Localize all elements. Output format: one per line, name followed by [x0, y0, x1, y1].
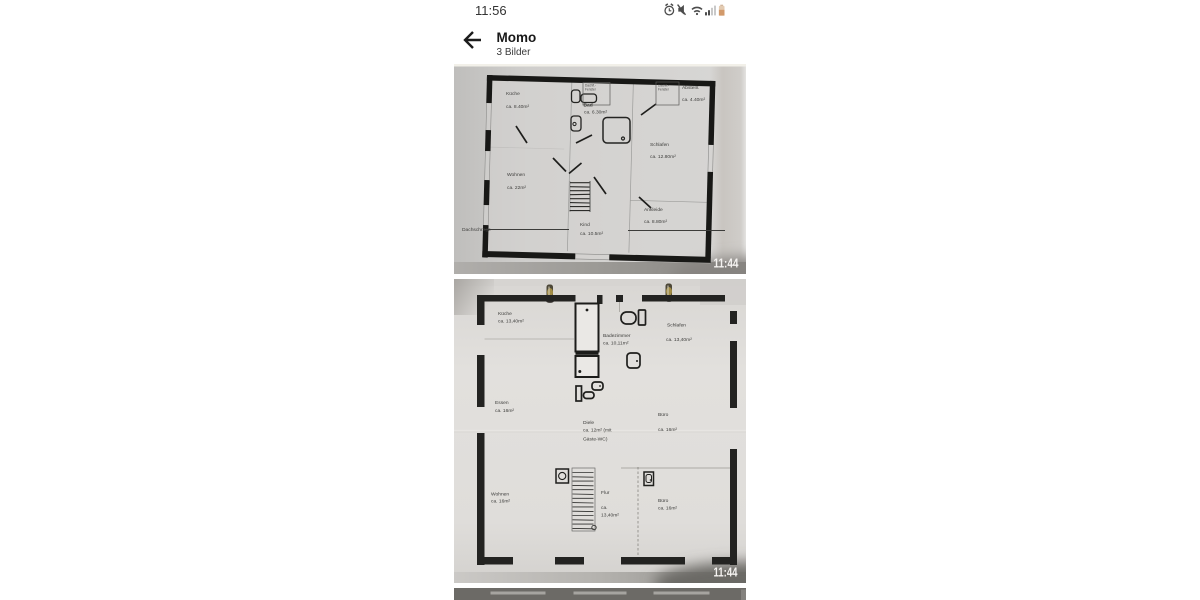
svg-text:Diele: Diele [583, 420, 594, 426]
svg-text:ca. 13,40m²: ca. 13,40m² [666, 337, 692, 343]
svg-text:ca.: ca. [601, 506, 608, 511]
svg-text:Wohnen: Wohnen [507, 172, 525, 178]
svg-text:ca. 22m²: ca. 22m² [507, 185, 526, 191]
svg-text:ca. 8.40m²: ca. 8.40m² [506, 104, 529, 110]
svg-text:11:44: 11:44 [714, 256, 740, 271]
svg-text:Badezimmer: Badezimmer [603, 333, 631, 339]
svg-text:ca. 10.5m²: ca. 10.5m² [580, 231, 603, 237]
svg-text:ca. 16m²: ca. 16m² [658, 506, 677, 512]
svg-text:ca. 10,11m²: ca. 10,11m² [603, 341, 629, 347]
svg-text:ca. 12.80m²: ca. 12.80m² [650, 154, 676, 160]
svg-text:11:44: 11:44 [714, 565, 739, 580]
svg-text:Fenster: Fenster [585, 88, 597, 92]
svg-text:ca. 4.40m²: ca. 4.40m² [682, 97, 705, 103]
svg-text:ca. 16m²: ca. 16m² [491, 499, 510, 505]
svg-text:Abstellr.: Abstellr. [682, 85, 699, 91]
svg-text:ca. 13,40m²: ca. 13,40m² [498, 319, 524, 325]
svg-text:Gäste-WC): Gäste-WC) [583, 437, 608, 443]
svg-text:Küche: Küche [506, 91, 520, 97]
svg-text:ca. 16m²: ca. 16m² [495, 408, 514, 414]
svg-text:ca. 8.80m²: ca. 8.80m² [644, 219, 667, 225]
svg-text:Kind: Kind [580, 222, 590, 228]
svg-text:Büro: Büro [658, 498, 669, 504]
svg-text:Fenster: Fenster [658, 88, 670, 92]
svg-text:Schlafen: Schlafen [667, 323, 686, 329]
svg-text:Wohnen: Wohnen [491, 492, 509, 498]
svg-text:ca. 6.30m²: ca. 6.30m² [584, 110, 607, 116]
svg-text:13,40m²: 13,40m² [601, 513, 619, 519]
svg-text:Bad: Bad [584, 103, 593, 109]
svg-text:ca. 16m²: ca. 16m² [658, 427, 677, 433]
svg-text:Dachschräge: Dachschräge [462, 227, 491, 233]
svg-text:ca. 12m² (mit: ca. 12m² (mit [583, 428, 612, 434]
svg-text:Küche: Küche [498, 311, 512, 317]
svg-text:Schlafen: Schlafen [650, 142, 669, 148]
svg-text:Ankleide: Ankleide [644, 207, 663, 213]
svg-text:Essen: Essen [495, 400, 509, 406]
svg-text:Flur: Flur [601, 490, 610, 496]
svg-text:Büro: Büro [658, 412, 669, 418]
